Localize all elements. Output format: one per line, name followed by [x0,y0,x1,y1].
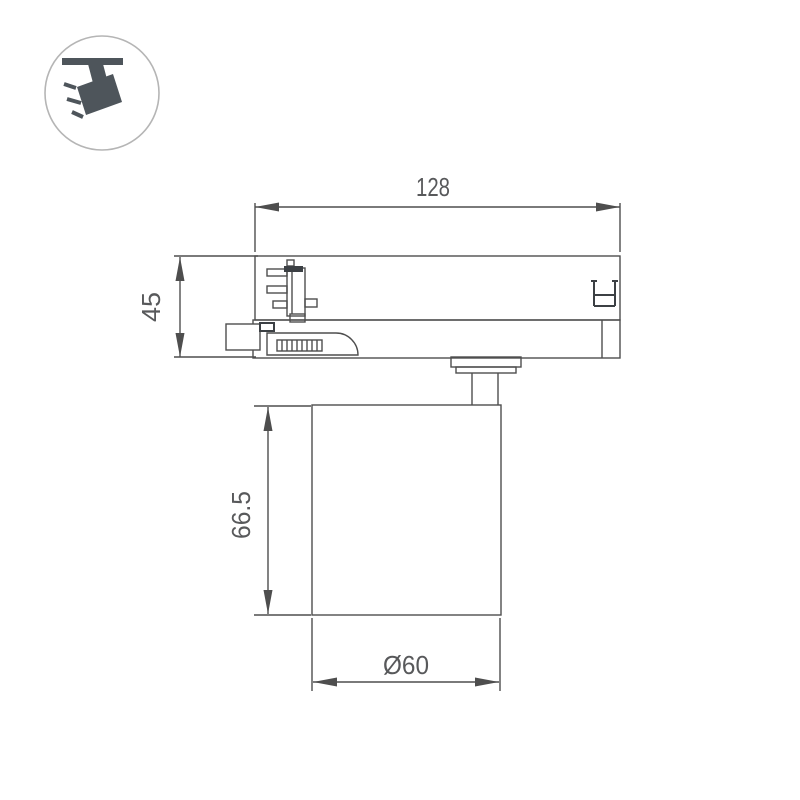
dimension-label-body-height: 66.5 [226,491,256,539]
carrier-foot [290,314,305,322]
side-tab [305,299,317,307]
adapter-upper-housing [255,256,620,320]
technical-drawing-canvas: 128 45 66.5 Ø60 [0,0,800,800]
carrier-screw [287,260,294,266]
latch-bracket-shape [591,281,618,306]
latch-bracket [591,281,618,306]
swivel-neck [451,357,521,405]
dimension-body-diameter: Ø60 [312,618,500,691]
carrier-cap [284,266,303,272]
contact-pin [273,301,287,308]
dimension-label-body-diameter: Ø60 [383,650,429,680]
hatch-frame [277,340,322,351]
dimension-label-track-width: 128 [416,172,450,202]
arrowhead-right [596,203,620,212]
lamp-body-drawing [312,405,501,615]
arrowhead-down [264,590,273,614]
arrowhead-up [176,257,185,281]
dimension-track-width: 128 [255,172,620,252]
clamp-notch [260,323,274,331]
arrowhead-left [255,203,279,212]
arrowhead-up [264,407,273,431]
hatch-strip [277,340,322,351]
track-bar [62,58,123,65]
clamp-lever [226,324,260,350]
track-adapter-drawing [226,256,620,405]
adapter-lower-bar [253,320,620,358]
lamp-body [312,405,501,615]
drawing-svg: 128 45 66.5 Ø60 [0,0,800,800]
hatch-lines [282,340,317,351]
contact-pin-block [267,260,317,322]
neck-flange-lower [456,367,516,373]
contact-pin [267,286,287,293]
legend-icon [45,36,159,150]
dimension-body-height: 66.5 [226,406,311,615]
pin-carrier [287,268,305,316]
dimension-label-adapter-height: 45 [136,292,166,322]
arrowhead-down [176,333,185,357]
arrowhead-left [313,678,337,687]
arrowhead-right [475,678,499,687]
